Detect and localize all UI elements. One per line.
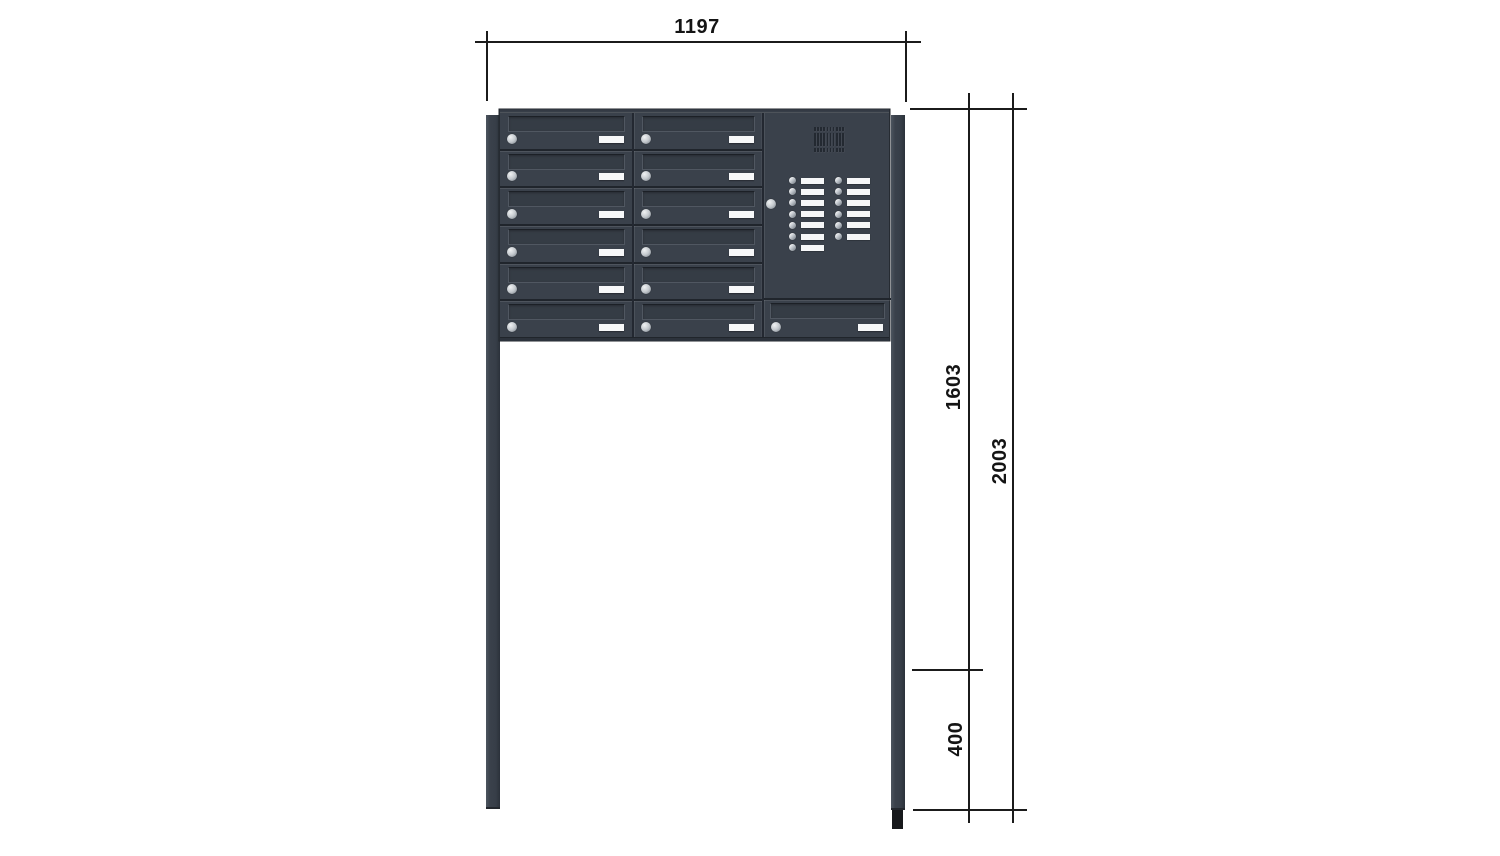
lock-icon [641, 247, 651, 257]
mail-slot-flap [642, 304, 755, 320]
mail-slot-flap [642, 267, 755, 283]
mail-slot-flap [508, 304, 625, 320]
bell-row [835, 209, 870, 220]
grille-slot [833, 148, 835, 152]
nameplate [729, 286, 754, 293]
bell-nameplate [847, 211, 870, 217]
grille-slot [827, 127, 829, 131]
bell-nameplate [801, 178, 824, 184]
intercom-panel [764, 113, 891, 298]
mailbox-box [634, 149, 762, 187]
bell-row [789, 242, 824, 253]
grille-slot [839, 133, 841, 146]
grille-slot [830, 148, 832, 152]
bell-row [835, 186, 870, 197]
mailbox-box [500, 113, 632, 149]
lock-icon [507, 247, 517, 257]
bell-nameplate [847, 234, 870, 240]
lock-icon [641, 322, 651, 332]
bell-nameplate [847, 200, 870, 206]
bell-button-group-right [835, 175, 870, 242]
lock-icon [641, 209, 651, 219]
dimension-label-upper-height: 1603 [943, 347, 965, 427]
nameplate [599, 249, 624, 256]
bell-nameplate [801, 189, 824, 195]
grille-slot [814, 127, 816, 131]
grille-slot [827, 133, 829, 146]
mail-slot-flap [508, 116, 625, 132]
bell-nameplate [801, 245, 824, 251]
doorbell-button-icon [789, 244, 796, 251]
grille-slot [823, 127, 825, 131]
extension-line-width-left [486, 31, 488, 101]
nameplate [599, 286, 624, 293]
grille-column [842, 127, 844, 153]
nameplate [599, 173, 624, 180]
mailbox-box [500, 186, 632, 224]
intercom-lock-icon [766, 199, 776, 209]
grille-slot [814, 148, 816, 152]
mailbox-box [634, 262, 762, 300]
bell-row [789, 175, 824, 186]
grille-column [814, 127, 816, 153]
lock-icon [771, 322, 781, 332]
grille-slot [817, 133, 819, 146]
mail-slot-flap [642, 191, 755, 207]
mail-slot-flap [508, 229, 625, 245]
mailbox-column-1 [500, 113, 632, 337]
mailbox-box [500, 224, 632, 262]
grille-column [830, 127, 832, 153]
bell-row [835, 231, 870, 242]
doorbell-button-icon [835, 233, 842, 240]
lock-icon [507, 134, 517, 144]
mailbox-box [500, 262, 632, 300]
nameplate [858, 324, 883, 331]
doorbell-button-icon [789, 188, 796, 195]
grille-slot [833, 127, 835, 131]
bell-row [789, 220, 824, 231]
mailbox-box [500, 149, 632, 187]
lock-icon [507, 209, 517, 219]
lock-icon [507, 284, 517, 294]
mailbox-column-2 [632, 113, 762, 337]
mail-slot-flap [770, 303, 885, 319]
grille-slot [814, 133, 816, 146]
grille-column [817, 127, 819, 153]
bell-row [789, 209, 824, 220]
grille-column [827, 127, 829, 153]
bell-row [835, 220, 870, 231]
lock-icon [507, 171, 517, 181]
bell-row [835, 175, 870, 186]
grille-column [839, 127, 841, 153]
grille-column [836, 127, 838, 153]
mailbox-box [634, 224, 762, 262]
doorbell-button-icon [789, 199, 796, 206]
dimension-label-ground-offset: 400 [945, 699, 967, 779]
grille-slot [820, 133, 822, 146]
dimension-label-width: 1197 [647, 16, 747, 38]
grille-slot [839, 148, 841, 152]
bell-row [789, 231, 824, 242]
bell-nameplate [801, 200, 824, 206]
doorbell-button-icon [789, 222, 796, 229]
nameplate [729, 173, 754, 180]
dimension-line-total-height [1012, 93, 1014, 823]
mailbox-box [634, 186, 762, 224]
cabinet-bottom-rail [500, 337, 889, 341]
mailbox-box [634, 299, 762, 337]
dimension-label-total-height: 2003 [989, 421, 1011, 501]
dimension-line-width [475, 41, 921, 43]
bell-row [789, 197, 824, 208]
left-support-post [486, 115, 500, 809]
lock-icon [641, 171, 651, 181]
grille-slot [839, 127, 841, 131]
doorbell-button-icon [835, 199, 842, 206]
lock-icon [641, 134, 651, 144]
nameplate [729, 211, 754, 218]
grille-slot [830, 127, 832, 131]
doorbell-button-icon [835, 211, 842, 218]
bell-nameplate [847, 222, 870, 228]
grille-slot [820, 148, 822, 152]
dimension-line-upper-height [968, 93, 970, 823]
mail-slot-flap [508, 191, 625, 207]
grille-slot [817, 127, 819, 131]
grille-slot [820, 127, 822, 131]
mailbox-box [500, 299, 632, 337]
lock-icon [507, 322, 517, 332]
grille-slot [836, 148, 838, 152]
bell-nameplate [801, 234, 824, 240]
nameplate [729, 324, 754, 331]
mailbox-cabinet [499, 109, 890, 341]
speaker-grille-icon [814, 127, 844, 153]
bell-row [835, 197, 870, 208]
bell-nameplate [801, 211, 824, 217]
mail-slot-flap [642, 229, 755, 245]
doorbell-button-icon [835, 188, 842, 195]
grille-slot [823, 133, 825, 146]
grille-slot [836, 127, 838, 131]
mail-slot-flap [508, 267, 625, 283]
intercom-column [762, 113, 891, 337]
bell-nameplate [847, 178, 870, 184]
nameplate [599, 136, 624, 143]
mail-slot-flap [642, 116, 755, 132]
doorbell-button-icon [789, 177, 796, 184]
bell-button-group-left [789, 175, 824, 253]
doorbell-button-icon [789, 211, 796, 218]
bell-nameplate [801, 222, 824, 228]
grille-slot [833, 133, 835, 146]
doorbell-button-icon [835, 177, 842, 184]
grille-column [823, 127, 825, 153]
doorbell-button-icon [789, 233, 796, 240]
right-support-post [891, 115, 905, 810]
doorbell-button-icon [835, 222, 842, 229]
nameplate [729, 136, 754, 143]
grille-column [820, 127, 822, 153]
grille-slot [842, 148, 844, 152]
grille-slot [827, 148, 829, 152]
extension-line-ground-offset [912, 669, 983, 671]
grille-slot [817, 148, 819, 152]
ground-anchor [892, 810, 903, 829]
grille-slot [823, 148, 825, 152]
technical-drawing-canvas: 1197 1603 2003 400 [0, 0, 1500, 856]
lock-icon [641, 284, 651, 294]
grille-slot [842, 127, 844, 131]
nameplate [729, 249, 754, 256]
mailbox-box [634, 113, 762, 149]
grille-slot [830, 133, 832, 146]
bell-nameplate [847, 189, 870, 195]
grille-slot [836, 133, 838, 146]
mailbox-box [764, 298, 891, 337]
nameplate [599, 211, 624, 218]
extension-line-bottom [913, 809, 1027, 811]
grille-slot [842, 133, 844, 146]
nameplate [599, 324, 624, 331]
mail-slot-flap [508, 154, 625, 170]
grille-column [833, 127, 835, 153]
mail-slot-flap [642, 154, 755, 170]
extension-line-width-right [905, 31, 907, 102]
bell-row [789, 186, 824, 197]
